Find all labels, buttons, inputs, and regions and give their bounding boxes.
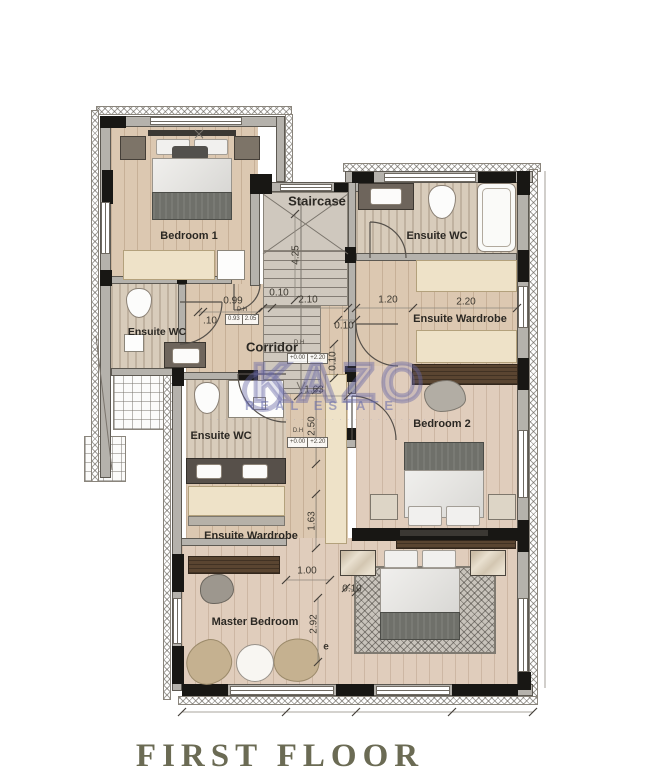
door-size-cells: 0.93 2.05 bbox=[225, 314, 259, 325]
dim-stair-offset: 0.10 bbox=[269, 288, 288, 299]
level-tag: D.H bbox=[294, 340, 304, 346]
dim-corridor-niche-small: .10 bbox=[203, 316, 217, 327]
dim-master-gap: 0.10 bbox=[342, 584, 361, 595]
dim-master-depth: 2.92 bbox=[309, 614, 320, 633]
room-label-bedroom1: Bedroom 1 bbox=[160, 230, 217, 242]
door-height-tag: D.H bbox=[237, 307, 247, 313]
dim-stair-width: 2.10 bbox=[298, 295, 317, 306]
room-label-staircase: Staircase bbox=[288, 194, 346, 209]
level-tag-2: D.H bbox=[293, 428, 303, 434]
dim-hall-lower: 1.63 bbox=[307, 511, 318, 530]
marker-x bbox=[195, 130, 203, 138]
dim-wc-right-door: 1.20 bbox=[378, 295, 397, 306]
room-label-ensuite-wardrobe-left: Ensuite Wardrobe bbox=[204, 530, 298, 542]
dim-stair-height: 4.25 bbox=[291, 245, 302, 264]
floor-plan-canvas: Bedroom 1 Staircase Ensuite WC Ensuite W… bbox=[0, 0, 646, 783]
watermark-subtitle: REAL ESTATE bbox=[245, 398, 399, 413]
dim-master-door: 1.00 bbox=[297, 566, 316, 577]
exterior-line bbox=[96, 336, 112, 470]
level-high-value-2: +2.20 bbox=[307, 438, 327, 447]
room-label-ensuite-wc-right: Ensuite WC bbox=[406, 230, 467, 242]
room-label-ensuite-wc-lower-left: Ensuite WC bbox=[190, 430, 251, 442]
door-arc bbox=[370, 222, 406, 258]
door-height-value: 2.05 bbox=[242, 315, 259, 324]
room-label-ensuite-wc-upper-left: Ensuite WC bbox=[128, 326, 186, 338]
dim-wardrobe-right-width: 2.20 bbox=[456, 297, 475, 308]
level-cells-2: +0.00 +2.20 bbox=[287, 437, 328, 448]
room-label-master-bedroom: Master Bedroom bbox=[212, 616, 299, 628]
door-width-value: 0.93 bbox=[226, 315, 242, 324]
dimension-ticks bbox=[178, 210, 537, 716]
watermark-tagline: · · · · · · · · · · · · · · · · · · · · … bbox=[209, 417, 451, 423]
room-label-ensuite-wardrobe-right: Ensuite Wardrobe bbox=[413, 313, 507, 325]
dim-node-e: e bbox=[323, 642, 329, 653]
dim-corridor-gap-h: 0.10 bbox=[334, 321, 353, 332]
level-low-value-2: +0.00 bbox=[288, 438, 307, 447]
dim-corridor-niche: 0.99 bbox=[223, 296, 242, 307]
